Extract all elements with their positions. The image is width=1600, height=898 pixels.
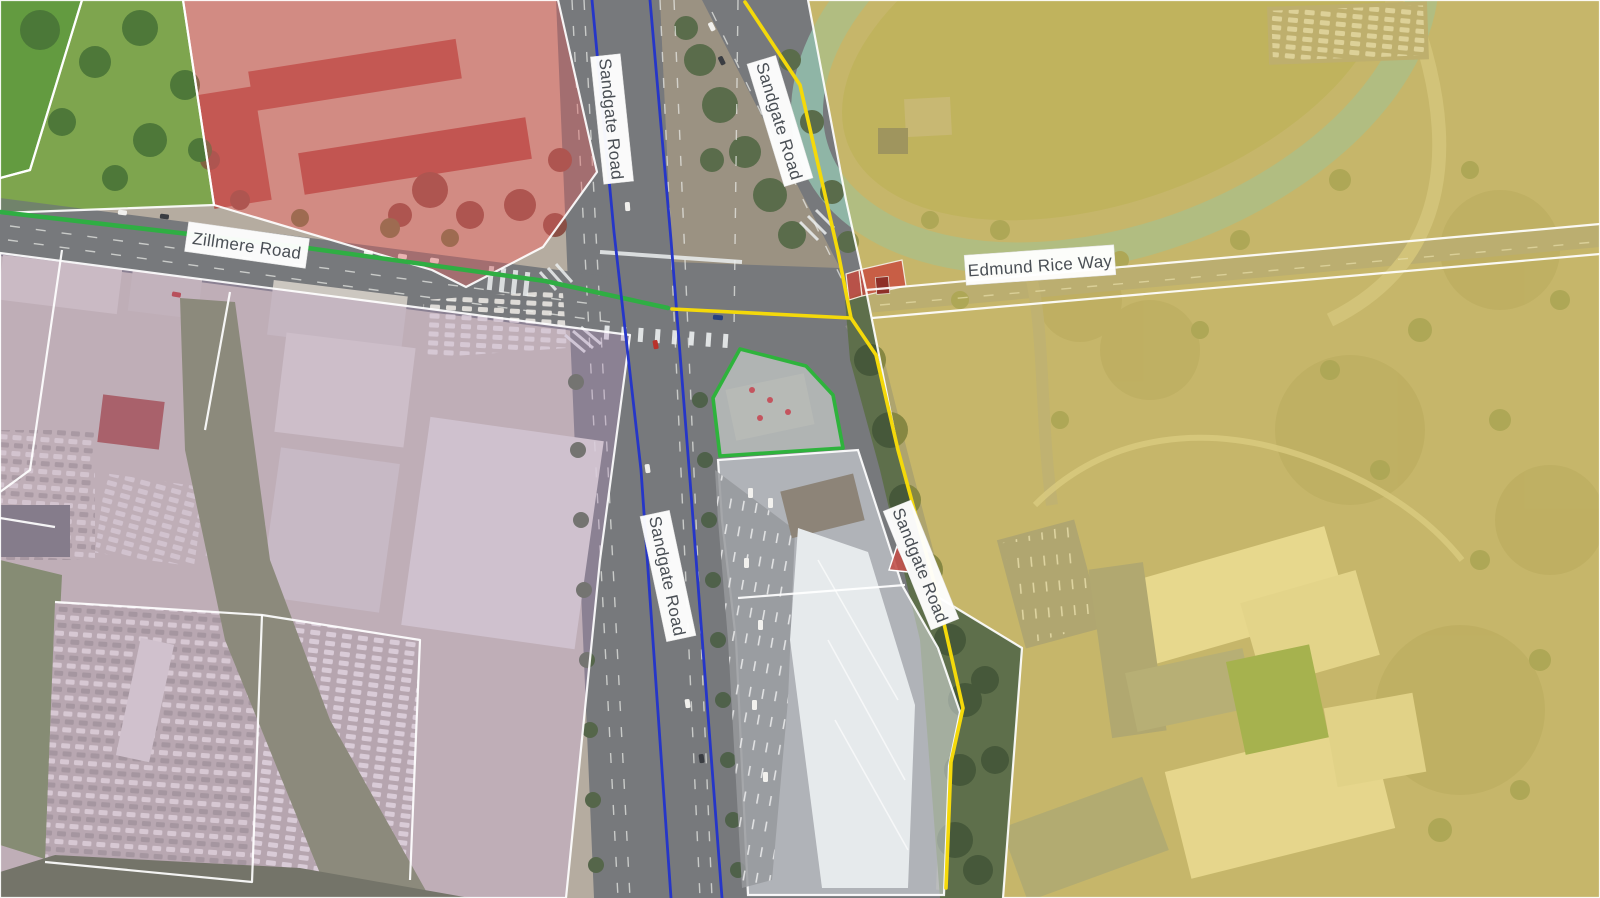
- aerial-map-canvas[interactable]: Sandgate Road Sandgate Road Sandgate Roa…: [0, 0, 1600, 898]
- map-svg: Sandgate Road Sandgate Road Sandgate Roa…: [0, 0, 1600, 898]
